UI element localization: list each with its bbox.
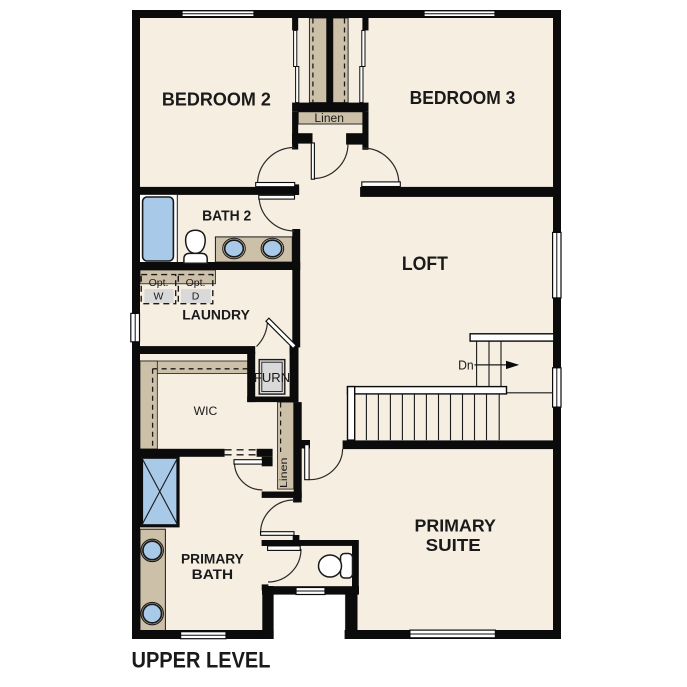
svg-text:D: D — [192, 291, 200, 303]
svg-text:Opt.: Opt. — [149, 277, 169, 289]
svg-text:WIC: WIC — [194, 404, 218, 418]
svg-text:PRIMARY: PRIMARY — [181, 550, 244, 566]
svg-text:UPPER LEVEL: UPPER LEVEL — [132, 647, 271, 672]
svg-text:FURN: FURN — [254, 371, 290, 385]
svg-text:Opt.: Opt. — [186, 277, 206, 289]
svg-text:PRIMARY: PRIMARY — [415, 515, 497, 535]
svg-text:BATH 2: BATH 2 — [202, 208, 251, 225]
svg-text:LAUNDRY: LAUNDRY — [182, 308, 250, 323]
svg-text:BEDROOM 3: BEDROOM 3 — [410, 88, 516, 108]
svg-text:Linen: Linen — [278, 457, 290, 488]
svg-text:SUITE: SUITE — [426, 535, 481, 555]
svg-text:BEDROOM 2: BEDROOM 2 — [162, 90, 271, 110]
svg-text:BATH: BATH — [192, 566, 234, 582]
svg-text:LOFT: LOFT — [402, 253, 448, 275]
svg-text:Linen: Linen — [314, 113, 344, 125]
svg-text:Dn: Dn — [458, 358, 474, 372]
svg-text:W: W — [154, 291, 164, 303]
